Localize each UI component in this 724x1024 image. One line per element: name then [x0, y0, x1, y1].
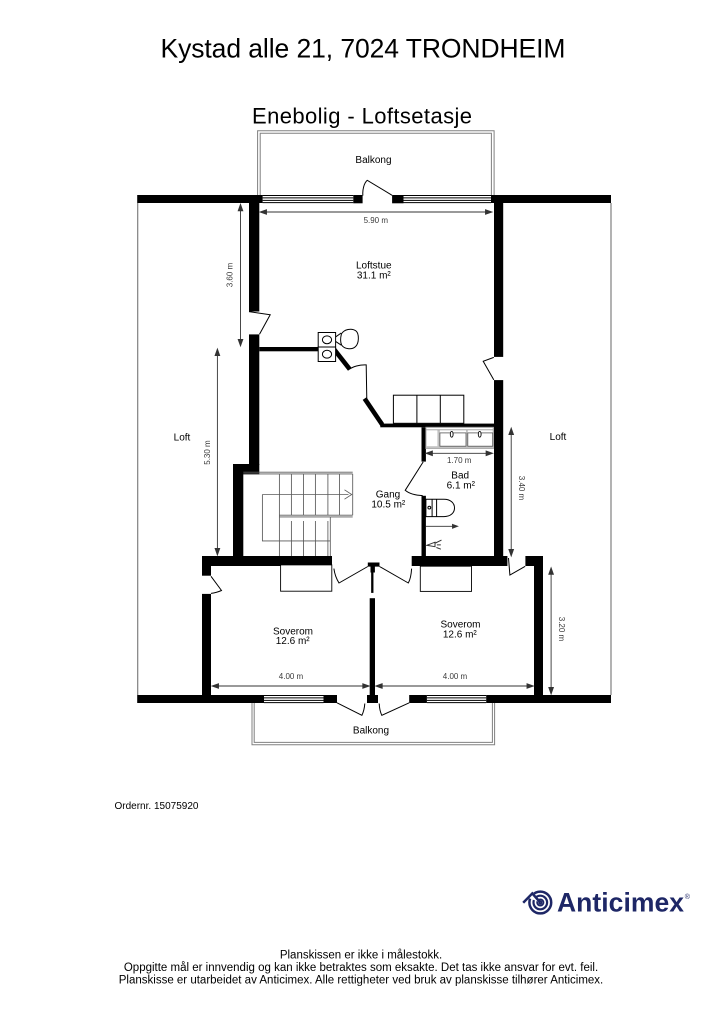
- svg-text:12.6 m²: 12.6 m²: [443, 629, 478, 640]
- svg-text:5.90 m: 5.90 m: [364, 216, 389, 225]
- svg-text:Balkong: Balkong: [353, 726, 389, 737]
- svg-text:3.40 m: 3.40 m: [517, 476, 526, 501]
- svg-text:10.5 m²: 10.5 m²: [371, 500, 406, 511]
- svg-text:Kystad alle 21, 7024 TRONDHEIM: Kystad alle 21, 7024 TRONDHEIM: [161, 34, 566, 64]
- svg-text:Ordernr. 15075920: Ordernr. 15075920: [115, 801, 199, 812]
- svg-text:Loft: Loft: [550, 432, 567, 443]
- svg-text:®: ®: [685, 893, 691, 901]
- svg-text:Anticimex: Anticimex: [557, 888, 684, 918]
- svg-text:31.1 m²: 31.1 m²: [357, 271, 392, 282]
- svg-text:3.60 m: 3.60 m: [226, 262, 235, 287]
- svg-text:Loft: Loft: [174, 433, 191, 444]
- svg-text:4.00 m: 4.00 m: [279, 672, 304, 681]
- svg-text:4.00 m: 4.00 m: [443, 672, 468, 681]
- svg-text:5.30 m: 5.30 m: [203, 440, 212, 465]
- svg-text:Enebolig - Loftsetasje: Enebolig - Loftsetasje: [252, 104, 472, 129]
- svg-text:6.1 m²: 6.1 m²: [447, 480, 476, 491]
- svg-text:Balkong: Balkong: [355, 155, 391, 166]
- svg-text:Planskissen er ikke i målestok: Planskissen er ikke i målestokk.: [280, 950, 442, 962]
- svg-text:Oppgitte mål er innvendig og k: Oppgitte mål er innvendig og kan ikke be…: [124, 962, 598, 974]
- svg-text:Planskisse er utarbeidet av An: Planskisse er utarbeidet av Anticimex. A…: [119, 974, 604, 986]
- svg-text:12.6 m²: 12.6 m²: [276, 636, 311, 647]
- svg-text:3.20 m: 3.20 m: [557, 617, 566, 642]
- svg-text:1.70 m: 1.70 m: [447, 456, 472, 465]
